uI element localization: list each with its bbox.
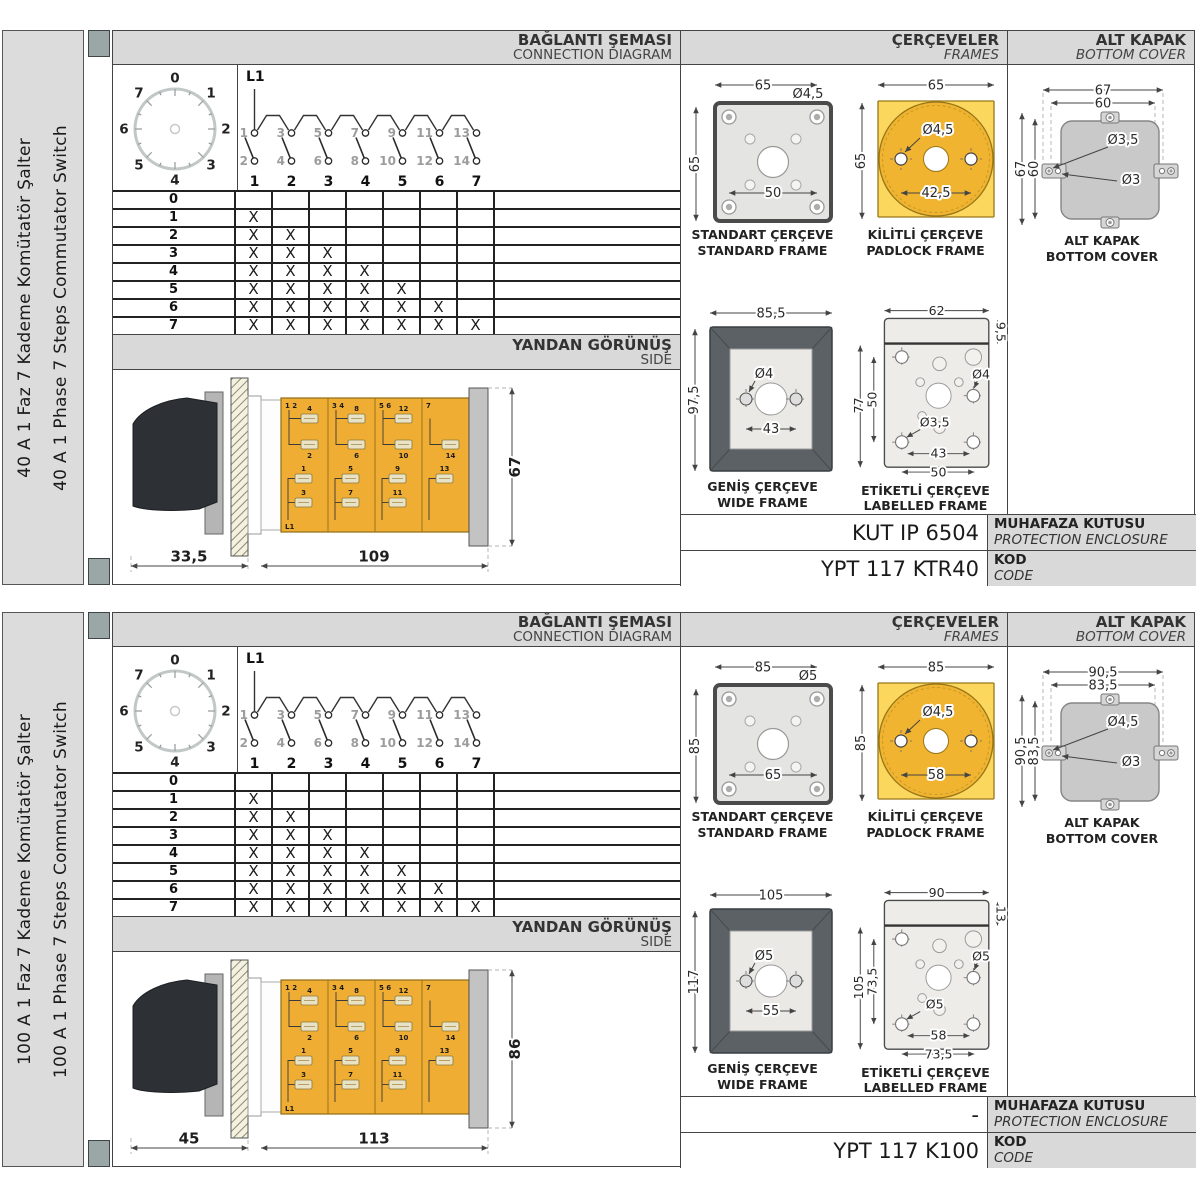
- terminal-section-label: 1 2: [285, 402, 297, 410]
- step-mark-cell: X: [347, 300, 384, 316]
- dim-padlock-hole: Ø4,5: [922, 123, 953, 138]
- dim-labelled-hole-right: Ø5: [972, 948, 990, 963]
- dial-position: 7: [134, 667, 143, 683]
- header-frames-tr: ÇERÇEVELER: [681, 614, 999, 630]
- dim-body-height: 86: [506, 1039, 524, 1060]
- step-mark-cell: [236, 192, 273, 208]
- step-mark-cell: X: [310, 282, 347, 298]
- switch-column-label: 7: [472, 174, 482, 190]
- dim-cover-tab-hole: Ø3,5: [1108, 133, 1139, 148]
- step-mark-cell: X: [273, 846, 310, 862]
- side-handle: [133, 398, 217, 510]
- step-mark-cell: X: [310, 318, 347, 334]
- connection-circuit: L1 12134256378491051112613147: [238, 647, 680, 772]
- switch-column-label: 2: [287, 756, 297, 772]
- side-endplate: [469, 388, 488, 546]
- step-mark-cell: [421, 246, 458, 262]
- dim-labelled-width: 90: [929, 885, 945, 900]
- step-mark-cell: X: [310, 264, 347, 280]
- header-connection-en: CONNECTION DIAGRAM: [113, 48, 672, 63]
- step-label: 6: [113, 882, 236, 898]
- binder-tab-top: [88, 30, 110, 57]
- step-label: 4: [113, 846, 236, 862]
- step-row-filler: [495, 810, 680, 826]
- standard-frame-caption: STANDART ÇERÇEVESTANDARD FRAME: [692, 809, 834, 840]
- step-mark-cell: [458, 810, 495, 826]
- step-mark-cell: X: [236, 300, 273, 316]
- terminal-bottom: 12: [416, 736, 433, 750]
- dim-front-depth: 45: [179, 1130, 200, 1148]
- terminal-top: 1: [240, 708, 248, 722]
- terminal-top: 9: [388, 126, 396, 140]
- step-mark-cell: X: [347, 864, 384, 880]
- dim-standard-span: 50: [764, 186, 781, 201]
- dial-position: 1: [206, 85, 215, 101]
- step-label: 7: [113, 900, 236, 916]
- step-mark-cell: [384, 228, 421, 244]
- dim-padlock-hole: Ø4,5: [922, 705, 953, 720]
- labelled-frame-caption: ETİKETLİ ÇERÇEVELABELLED FRAME: [861, 1065, 990, 1096]
- code-row: YPT 117 K100 KOD CODE: [681, 1132, 1196, 1168]
- step-row-filler: [495, 318, 680, 334]
- step-mark-cell: [384, 210, 421, 226]
- dim-labelled-band: 13: [994, 906, 1008, 922]
- step-row-filler: [495, 828, 680, 844]
- enclosure-value: -: [681, 1096, 987, 1132]
- step-mark-cell: [384, 792, 421, 808]
- side-mounting-plate: [231, 378, 248, 556]
- step-mark-cell: [421, 228, 458, 244]
- bottom-cover-figure: 90,5 83,5 90,5 83,5: [1008, 647, 1196, 846]
- dial-position: 2: [221, 704, 230, 720]
- step-mark-cell: X: [347, 900, 384, 916]
- terminal-number: 3: [301, 1071, 306, 1079]
- switch-column-label: 5: [398, 756, 408, 772]
- terminal-top: 5: [314, 708, 322, 722]
- dim-labelled-bolt-span: 73,5: [925, 1046, 953, 1061]
- terminal-bottom: 10: [379, 736, 396, 750]
- terminal-section-label: 3 4: [332, 402, 344, 410]
- step-mark-cell: [347, 210, 384, 226]
- step-mark-cell: X: [273, 264, 310, 280]
- enclosure-row: KUT IP 6504 MUHAFAZA KUTUSU PROTECTION E…: [681, 514, 1196, 550]
- step-mark-cell: [347, 228, 384, 244]
- step-mark-cell: [421, 792, 458, 808]
- step-mark-cell: X: [384, 318, 421, 334]
- terminal-section-label: 7: [426, 984, 431, 992]
- terminal-top: 9: [388, 708, 396, 722]
- header-frames-en: FRAMES: [681, 630, 999, 645]
- step-mark-cell: [310, 228, 347, 244]
- switch-column-label: 3: [324, 756, 334, 772]
- code-label: KOD CODE: [987, 550, 1196, 586]
- step-mark-cell: [458, 210, 495, 226]
- standard-frame-figure: 85 Ø5 85: [681, 647, 844, 875]
- step-label: 6: [113, 300, 236, 316]
- terminal-bottom: 4: [277, 736, 285, 750]
- enclosure-row: - MUHAFAZA KUTUSU PROTECTION ENCLOSURE: [681, 1096, 1196, 1132]
- terminal-bottom: 12: [416, 154, 433, 168]
- step-mark-cell: X: [236, 264, 273, 280]
- step-mark-cell: [347, 192, 384, 208]
- step-mark-cell: [347, 828, 384, 844]
- step-mark-cell: X: [310, 864, 347, 880]
- step-mark-cell: X: [236, 318, 273, 334]
- labelled-frame-caption: ETİKETLİ ÇERÇEVELABELLED FRAME: [861, 483, 990, 514]
- panel-40a: 40 A 1 Faz 7 Kademe Komütatör Şalter 40 …: [0, 30, 1200, 585]
- side-spacer: [248, 396, 261, 534]
- step-row: 7XXXXXXX: [113, 898, 680, 916]
- step-mark-cell: X: [347, 882, 384, 898]
- switch-column-label: 6: [435, 174, 445, 190]
- dim-cover-inner-h: 83,5: [1027, 737, 1042, 766]
- dim-labelled-hole-bl: Ø5: [926, 997, 944, 1012]
- switch-column-label: 5: [398, 174, 408, 190]
- labelled-frame-figure: 90 13 105 73,5: [844, 875, 1007, 1096]
- step-row: 4XXXX: [113, 844, 680, 862]
- step-mark-cell: X: [236, 246, 273, 262]
- terminal-bottom: 10: [379, 154, 396, 168]
- step-row: 6XXXXXX: [113, 298, 680, 316]
- step-mark-cell: [273, 192, 310, 208]
- step-mark-cell: X: [384, 900, 421, 916]
- step-row-filler: [495, 282, 680, 298]
- step-mark-cell: [421, 264, 458, 280]
- header-cover-tr: ALT KAPAK: [1008, 32, 1186, 48]
- labelled-center-hole: [926, 383, 951, 408]
- padlock-center-hole: [923, 147, 948, 172]
- side-l1-label: L1: [285, 1105, 294, 1113]
- product-title-tr: 100 A 1 Faz 7 Kademe Komütatör Şalter: [15, 714, 35, 1065]
- step-row: 5XXXXX: [113, 280, 680, 298]
- header-cover-en: BOTTOM COVER: [1008, 630, 1186, 645]
- step-mark-cell: [384, 846, 421, 862]
- step-label: 3: [113, 828, 236, 844]
- dim-cover-small-hole: Ø3: [1122, 173, 1141, 188]
- step-row: 3XXX: [113, 244, 680, 262]
- step-mark-cell: [458, 228, 495, 244]
- step-mark-cell: X: [310, 882, 347, 898]
- step-mark-cell: [458, 828, 495, 844]
- terminal-top: 5: [314, 126, 322, 140]
- step-mark-cell: X: [310, 846, 347, 862]
- step-row-filler: [495, 846, 680, 862]
- dim-labelled-hole-bl: Ø3,5: [920, 415, 950, 430]
- terminal-number: 10: [399, 1034, 409, 1042]
- side-l1-label: L1: [285, 523, 294, 531]
- terminal-number: 5: [348, 1047, 353, 1055]
- header-connection-tr: BAĞLANTI ŞEMASI: [113, 614, 672, 630]
- terminal-top: 11: [416, 126, 433, 140]
- dim-body-length: 109: [358, 548, 389, 566]
- terminal-number: 4: [307, 987, 312, 995]
- step-row-filler: [495, 264, 680, 280]
- step-mark-cell: X: [310, 246, 347, 262]
- step-row-filler: [495, 228, 680, 244]
- terminal-number: 9: [395, 465, 400, 473]
- step-mark-cell: [384, 192, 421, 208]
- binder-tab-bottom: [88, 1140, 110, 1167]
- dim-labelled-span-v: 50: [865, 392, 880, 408]
- step-row: 1X: [113, 790, 680, 808]
- padlock-center-hole: [923, 729, 948, 754]
- header-connection-diagram: BAĞLANTI ŞEMASI CONNECTION DIAGRAM: [113, 613, 680, 646]
- dim-wide-span: 55: [762, 1004, 779, 1019]
- terminal-number: 13: [440, 465, 450, 473]
- step-label: 2: [113, 228, 236, 244]
- terminal-top: 3: [277, 126, 285, 140]
- terminal-top: 7: [351, 126, 359, 140]
- side-endplate: [469, 970, 488, 1128]
- labelled-frame-figure: 62 9,5 77 50: [844, 293, 1007, 514]
- dim-cover-inner-w: 60: [1095, 97, 1112, 112]
- switch-column-label: 7: [472, 756, 482, 772]
- padlock-frame-caption: KİLİTLİ ÇERÇEVEPADLOCK FRAME: [866, 227, 984, 258]
- step-row: 3XXX: [113, 826, 680, 844]
- side-view-figure: 1 242133 486575 6121091171413 L1 33,5 10…: [113, 370, 680, 586]
- padlock-frame-figure: 85 85 Ø4,5 58: [844, 647, 1007, 875]
- frames-section: 65 Ø4,5 65: [681, 65, 1007, 514]
- header-connection-diagram: BAĞLANTI ŞEMASI CONNECTION DIAGRAM: [113, 31, 680, 64]
- standard-frame-caption: STANDART ÇERÇEVESTANDARD FRAME: [692, 227, 834, 258]
- side-view-header: YANDAN GÖRÜNÜŞ SIDE: [113, 334, 680, 370]
- step-mark-cell: X: [384, 300, 421, 316]
- rotary-dial-figure: 01234567: [113, 65, 238, 190]
- step-mark-cell: [458, 246, 495, 262]
- datasheet-main: BAĞLANTI ŞEMASI CONNECTION DIAGRAM ÇERÇE…: [112, 30, 1195, 585]
- step-row-filler: [495, 300, 680, 316]
- dial-position: 4: [170, 173, 179, 189]
- terminal-number: 11: [393, 489, 403, 497]
- step-mark-cell: X: [421, 318, 458, 334]
- step-mark-cell: [421, 846, 458, 862]
- step-label: 7: [113, 318, 236, 334]
- header-bottom-cover: ALT KAPAK BOTTOM COVER: [1007, 31, 1194, 64]
- step-mark-cell: [347, 792, 384, 808]
- step-mark-cell: [458, 774, 495, 790]
- step-mark-cell: X: [236, 882, 273, 898]
- dim-wide-height: 117: [687, 970, 702, 995]
- standard-center-hole: [757, 729, 788, 760]
- dial-position: 5: [134, 158, 143, 174]
- dial-position: 6: [119, 122, 128, 138]
- header-connection-tr: BAĞLANTI ŞEMASI: [113, 32, 672, 48]
- step-row: 1X: [113, 208, 680, 226]
- step-label: 0: [113, 774, 236, 790]
- step-mark-cell: X: [347, 846, 384, 862]
- step-mark-cell: [347, 774, 384, 790]
- dial-position: 2: [221, 122, 230, 138]
- dim-standard-hole: Ø5: [798, 669, 817, 684]
- step-mark-cell: [421, 774, 458, 790]
- bottom-cover-caption: ALT KAPAKBOTTOM COVER: [1046, 233, 1158, 264]
- terminal-bottom: 14: [453, 154, 470, 168]
- step-mark-cell: X: [273, 300, 310, 316]
- terminal-number: 12: [399, 405, 409, 413]
- terminal-top: 7: [351, 708, 359, 722]
- step-mark-cell: [384, 810, 421, 826]
- rotary-dial-figure: 01234567: [113, 647, 238, 772]
- terminal-number: 6: [354, 1034, 359, 1042]
- terminal-number: 14: [446, 452, 456, 460]
- circuit-l1-label: L1: [246, 69, 265, 85]
- terminal-bottom: 2: [240, 736, 248, 750]
- step-row-filler: [495, 900, 680, 916]
- wide-frame-figure: 105 117 Ø5 55: [681, 875, 844, 1096]
- frames-section: 85 Ø5 85: [681, 647, 1007, 1096]
- step-mark-cell: X: [384, 882, 421, 898]
- header-frames-en: FRAMES: [681, 48, 999, 63]
- terminal-number: 3: [301, 489, 306, 497]
- header-bottom-cover: ALT KAPAK BOTTOM COVER: [1007, 613, 1194, 646]
- step-mark-cell: X: [347, 282, 384, 298]
- step-mark-cell: X: [347, 264, 384, 280]
- dial-center: [171, 707, 180, 716]
- side-header-tr: YANDAN GÖRÜNÜŞ: [113, 337, 672, 353]
- terminal-section-label: 7: [426, 402, 431, 410]
- dial-position: 0: [170, 71, 179, 87]
- wide-center-hole: [755, 383, 787, 415]
- standard-center-hole: [757, 147, 788, 178]
- step-mark-cell: X: [236, 900, 273, 916]
- step-row: 7XXXXXXX: [113, 316, 680, 334]
- step-row: 2XX: [113, 808, 680, 826]
- dim-padlock-height: 85: [854, 735, 869, 752]
- switch-column-label: 4: [361, 756, 371, 772]
- dim-labelled-span-v: 73,5: [865, 968, 880, 996]
- terminal-top: 11: [416, 708, 433, 722]
- step-row-filler: [495, 774, 680, 790]
- dial-position: 7: [134, 85, 143, 101]
- step-mark-cell: X: [310, 900, 347, 916]
- binder-tab-top: [88, 612, 110, 639]
- circuit-gfx: 12134256378491051112613147: [240, 89, 482, 190]
- step-label: 1: [113, 210, 236, 226]
- code-value: YPT 117 KTR40: [681, 550, 987, 586]
- circuit-l1-label: L1: [246, 651, 265, 667]
- terminal-section-label: 5 6: [379, 984, 391, 992]
- terminal-bottom: 6: [314, 154, 322, 168]
- step-mark-cell: X: [236, 792, 273, 808]
- step-mark-cell: [384, 264, 421, 280]
- step-mark-cell: X: [421, 900, 458, 916]
- terminal-top: 13: [453, 708, 470, 722]
- step-mark-cell: [421, 192, 458, 208]
- terminal-bottom: 4: [277, 154, 285, 168]
- step-label: 2: [113, 810, 236, 826]
- terminal-number: 11: [393, 1071, 403, 1079]
- dim-cover-tab-hole: Ø4,5: [1108, 715, 1139, 730]
- enclosure-label: MUHAFAZA KUTUSU PROTECTION ENCLOSURE: [987, 1096, 1196, 1132]
- dim-labelled-hole-right: Ø4: [972, 366, 990, 381]
- terminal-bottom: 8: [351, 154, 359, 168]
- header-frames-tr: ÇERÇEVELER: [681, 32, 999, 48]
- terminal-bottom: 8: [351, 736, 359, 750]
- step-mark-cell: X: [273, 246, 310, 262]
- step-mark-cell: [310, 810, 347, 826]
- binder-tab-bottom: [88, 558, 110, 585]
- header-cover-tr: ALT KAPAK: [1008, 614, 1186, 630]
- dim-labelled-span-h: 58: [931, 1028, 947, 1043]
- step-mark-cell: X: [273, 282, 310, 298]
- product-title-en: 100 A 1 Phase 7 Steps Commutator Switch: [51, 701, 71, 1078]
- terminal-number: 7: [348, 1071, 353, 1079]
- step-mark-cell: X: [236, 210, 273, 226]
- side-view-figure: 1 242133 486575 6121091171413 L1 45 113 …: [113, 952, 680, 1168]
- step-mark-cell: X: [273, 864, 310, 880]
- step-label: 5: [113, 864, 236, 880]
- dial-position: 3: [206, 740, 215, 756]
- step-mark-cell: [421, 282, 458, 298]
- switch-column-label: 1: [250, 174, 260, 190]
- code-value: YPT 117 K100: [681, 1132, 987, 1168]
- dim-standard-height: 65: [688, 156, 703, 173]
- step-mark-cell: [310, 210, 347, 226]
- terminal-number: 6: [354, 452, 359, 460]
- step-row: 5XXXXX: [113, 862, 680, 880]
- dim-padlock-height: 65: [854, 153, 869, 170]
- step-mark-cell: X: [236, 282, 273, 298]
- step-label: 4: [113, 264, 236, 280]
- step-mark-cell: X: [421, 300, 458, 316]
- side-header-tr: YANDAN GÖRÜNÜŞ: [113, 919, 672, 935]
- side-header-en: SIDE: [113, 353, 672, 368]
- terminal-number: 8: [354, 405, 359, 413]
- datasheet-main: BAĞLANTI ŞEMASI CONNECTION DIAGRAM ÇERÇE…: [112, 612, 1195, 1167]
- step-mark-cell: X: [273, 318, 310, 334]
- section-headers: BAĞLANTI ŞEMASI CONNECTION DIAGRAM ÇERÇE…: [113, 613, 1194, 647]
- dim-wide-width: 85,5: [756, 307, 785, 322]
- side-handle: [133, 980, 217, 1092]
- code-label: KOD CODE: [987, 1132, 1196, 1168]
- terminal-number: 7: [348, 489, 353, 497]
- bottom-cover-figure: 67 60 67 60: [1008, 65, 1196, 264]
- dial-position: 3: [206, 158, 215, 174]
- step-mark-cell: [384, 246, 421, 262]
- terminal-number: 14: [446, 1034, 456, 1042]
- step-mark-cell: [421, 828, 458, 844]
- step-mark-cell: X: [273, 228, 310, 244]
- dim-padlock-width: 65: [927, 79, 944, 94]
- dial-position: 4: [170, 755, 179, 771]
- dial-center: [171, 125, 180, 134]
- step-mark-cell: [421, 810, 458, 826]
- step-mark-cell: [458, 846, 495, 862]
- wide-frame-caption: GENİŞ ÇERÇEVEWIDE FRAME: [707, 479, 818, 510]
- step-mark-cell: X: [236, 228, 273, 244]
- step-mark-cell: X: [458, 900, 495, 916]
- switch-column-label: 1: [250, 756, 260, 772]
- step-mark-cell: [310, 774, 347, 790]
- padlock-frame-caption: KİLİTLİ ÇERÇEVEPADLOCK FRAME: [866, 809, 984, 840]
- dim-standard-span: 65: [764, 768, 781, 783]
- step-row: 6XXXXXX: [113, 880, 680, 898]
- dim-padlock-span: 42,5: [921, 186, 950, 201]
- bottom-cover-caption: ALT KAPAKBOTTOM COVER: [1046, 815, 1158, 846]
- terminal-number: 5: [348, 465, 353, 473]
- dim-labelled-band: 9,5: [994, 322, 1008, 342]
- side-header-en: SIDE: [113, 935, 672, 950]
- step-row-filler: [495, 792, 680, 808]
- dim-labelled-span-h: 43: [931, 446, 947, 461]
- terminal-number: 2: [307, 1034, 312, 1042]
- step-mark-cell: [273, 792, 310, 808]
- step-row-filler: [495, 864, 680, 880]
- terminal-top: 1: [240, 126, 248, 140]
- step-mark-cell: [273, 774, 310, 790]
- step-mark-cell: [347, 810, 384, 826]
- step-mark-cell: X: [236, 846, 273, 862]
